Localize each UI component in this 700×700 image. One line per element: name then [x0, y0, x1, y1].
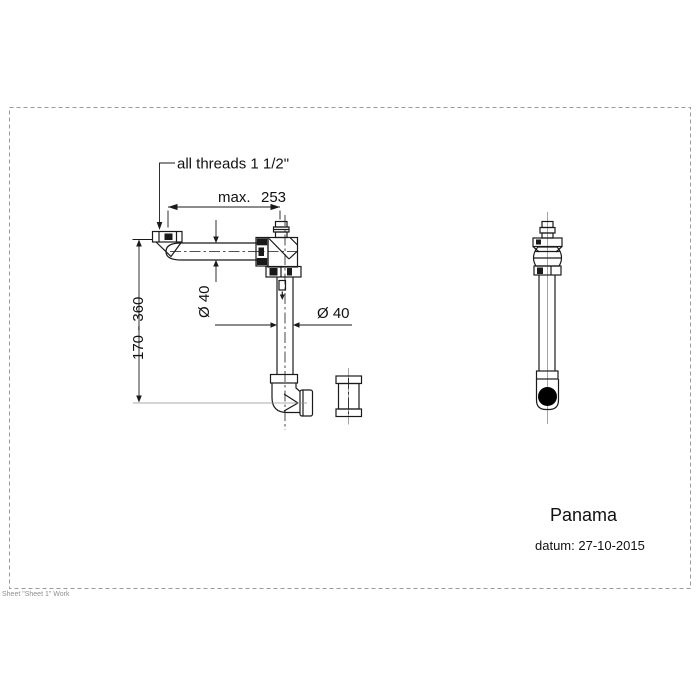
- side-view: [533, 212, 562, 424]
- dimensions: all threads 1 1/2" max.253 Ø 40 Ø 40: [130, 156, 352, 403]
- vertical-pipe-diameter-dimension: [215, 322, 352, 328]
- max-width-label: max.253: [218, 189, 286, 206]
- inlet-nut: [153, 232, 183, 257]
- outlet-nut: [266, 267, 301, 278]
- product-title: Panama: [550, 505, 618, 525]
- drawing-sheet: all threads 1 1/2" max.253 Ø 40 Ø 40: [0, 0, 700, 700]
- horizontal-pipe: [166, 243, 298, 260]
- height-range-label: 170 - 360: [130, 297, 147, 360]
- hose-barb: [274, 222, 290, 238]
- title-block: Panama datum: 27-10-2015: [535, 505, 645, 553]
- sheet-note: Sheet "Sheet 1" Work: [2, 591, 70, 598]
- thread-callout-leader: [157, 163, 175, 230]
- date-label: datum: 27-10-2015: [535, 538, 645, 553]
- flow-direction-marker: [279, 281, 286, 301]
- pipe-coupling: [336, 368, 362, 425]
- thread-callout-label: all threads 1 1/2": [177, 156, 289, 173]
- side-vertical-pipe: [539, 275, 555, 371]
- horizontal-pipe-diameter-label: Ø 40: [196, 285, 213, 318]
- horizontal-pipe-diameter-dimension: [213, 220, 219, 282]
- front-view: [133, 215, 362, 430]
- max-width-dimension: [168, 204, 280, 228]
- elbow-fitting: [268, 238, 298, 268]
- outlet-elbow: [133, 375, 313, 417]
- vertical-pipe-diameter-label: Ø 40: [317, 305, 350, 322]
